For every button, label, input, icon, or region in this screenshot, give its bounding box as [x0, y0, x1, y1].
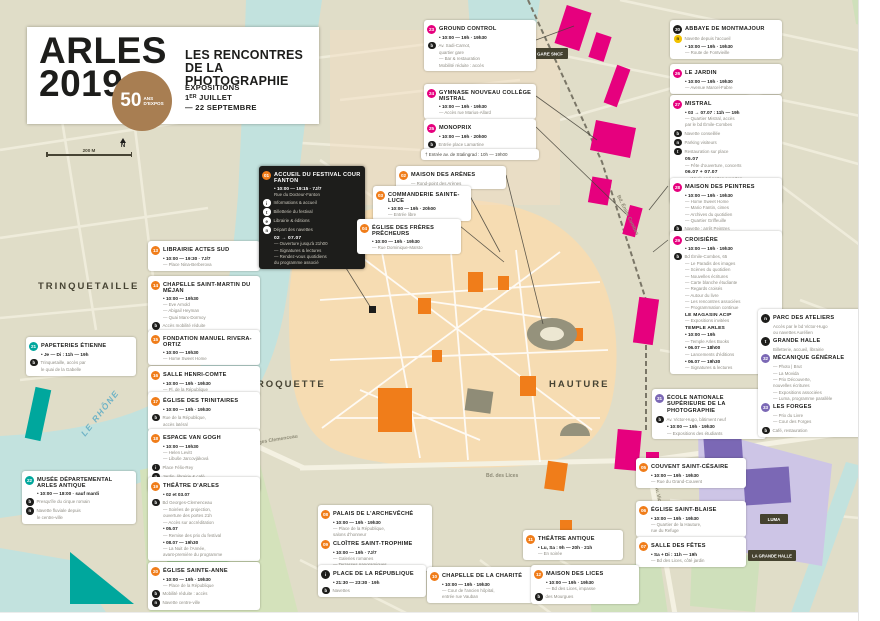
- exhibition-line: — Avenue Marcel-Fabre: [685, 85, 778, 91]
- venue-card-palais-archeveche-cloitre: 08PALAIS DE L'ARCHEVÊCHÉ• 10:00 — 19h · …: [318, 505, 432, 571]
- venue-title: MÉCANIQUE GÉNÉRALE: [773, 354, 844, 362]
- n-amenity-icon: n: [674, 35, 682, 43]
- exhibition-line: — La Movida: [773, 371, 870, 377]
- venue-number-badge: 06: [639, 506, 648, 515]
- venue-header: 24GYMNASE NOUVEAU COLLÈGE MISTRAL: [427, 88, 532, 103]
- venue-header: 07SALLE DES FÊTES: [639, 541, 742, 551]
- venue-header: 02MAISON DES ARÈNES: [399, 170, 502, 180]
- venue-title: PALAIS DE L'ARCHEVÊCHÉ: [333, 509, 413, 517]
- road-label-lices: Bd. des Lices: [486, 473, 518, 479]
- exhibition-line: — Route de Fontvieille: [685, 50, 778, 56]
- venue-title: CLOÎTRE SAINT-TROPHIME: [333, 539, 412, 547]
- venue-title: SALLE HENRI-COMTE: [163, 370, 227, 378]
- amenity-text: Librairie & éditions: [274, 218, 310, 223]
- amenity-text: Bd Georges-Clemenceau: [163, 500, 213, 505]
- venue-title: ACCUEIL DU FESTIVAL COUR FANTON: [274, 170, 361, 185]
- venue-header: nPARC DES ATELIERS: [761, 313, 870, 323]
- exhibition-line: — Quartier de la Hauture,: [651, 522, 742, 528]
- venue-title: GYMNASE NOUVEAU COLLÈGE MISTRAL: [439, 88, 532, 103]
- amenity-row: bMobilité réduite : accès: [152, 590, 256, 598]
- amenity-row: bAv. Sadi-Carnot,: [428, 42, 532, 50]
- exhibition-line: — Abigail Heyman: [163, 308, 256, 314]
- venue-header: iPLACE DE LA RÉPUBLIQUE: [321, 569, 422, 579]
- venue-title: GRANDE HALLE: [773, 337, 820, 345]
- exhibition-line: — Rendez-vous quotidiens: [274, 254, 361, 260]
- venue-header: 20ÉGLISE SAINTE-ANNE: [151, 566, 256, 576]
- exhibition-line: salons d'honneur: [333, 532, 428, 538]
- venue-header: 31ÉCOLE NATIONALE SUPÉRIEURE DE LA PHOTO…: [655, 393, 762, 414]
- hours-line: • 10:00 — 19h · 19h30: [685, 44, 778, 50]
- venue-title: FONDATION MANUEL RIVERA-ORTIZ: [163, 334, 256, 349]
- exhibition-line: — Place de la République: [163, 583, 256, 589]
- title-card: ARLES 2019 50 ANS D'EXPOS LES RENCONTRES…: [27, 27, 319, 124]
- exhibition-line: — Nouvelles écritures: [685, 274, 778, 280]
- b-amenity-icon: b: [674, 253, 682, 261]
- venue-card-fondation-manuel-rivera-ortiz: 15FONDATION MANUEL RIVERA-ORTIZ• 10:00 —…: [148, 330, 260, 365]
- exhibition-line: Mobilité réduite : accès: [439, 63, 532, 69]
- exhibition-line: — Signatures & lectures: [274, 248, 361, 254]
- venue-number-badge: 08: [321, 510, 330, 519]
- event-dates: EXPOSITIONS 1ᴱᴿ JUILLET — 22 SEPTEMBRE: [185, 83, 257, 113]
- amenity-text: Trinquetaille, accès par: [41, 360, 86, 365]
- hours-line: • 10:00 — 19h · 19h30: [442, 582, 529, 588]
- amenity-row: nParking visiteurs: [674, 139, 778, 147]
- venue-title: MONOPRIX: [439, 123, 471, 131]
- t-amenity-icon: t: [263, 208, 271, 216]
- venue-number-badge: 05: [639, 463, 648, 472]
- exhibition-line: — Cour des Forges: [773, 419, 870, 425]
- amenity-text: Presqu'île du cirque romain: [37, 499, 90, 504]
- venue-title: ÉGLISE DES FRÈRES PRÊCHEURS: [372, 223, 457, 238]
- arenes-inner: [540, 327, 564, 341]
- exhibition-line: — En soirée: [538, 551, 619, 557]
- venue-number-badge: 09: [321, 540, 330, 549]
- venue-title: LES FORGES: [773, 403, 812, 411]
- exhibition-line: — Libuše Jarcovjáková: [163, 456, 256, 462]
- exhibition-line: — Bar & restauration: [439, 56, 532, 62]
- venue-card-eglise-des-trinitaires: 17ÉGLISE DES TRINITAIRES• 10:00 — 19h · …: [148, 392, 260, 431]
- venue-card-parc-des-ateliers: nPARC DES ATELIERSAccès par le bd Victor…: [758, 309, 874, 437]
- venue-card-commanderie-sainte-luce: 03COMMANDERIE SAINTE-LUCE• 10:00 — 19h ·…: [373, 186, 471, 221]
- venue-number-badge: 29: [673, 236, 682, 245]
- exhibition-line: — Home Sweet Home: [685, 199, 778, 205]
- hours-line: • Sa + Di : 11h — 19h: [651, 552, 742, 558]
- hours-line: • 03 → 07.07 : 11h — 19h: [685, 110, 778, 116]
- amenity-text: Restauration sur place: [685, 149, 729, 154]
- venue-number-badge: 27: [673, 100, 682, 109]
- venue-number-badge: t: [761, 337, 770, 346]
- venue-number-badge: 01: [262, 171, 271, 180]
- arles-festival-map: GARE SNCF LUMA LA GRANDE HALLE Bd. Georg…: [0, 0, 880, 621]
- amenity-text: Café, restauration: [773, 428, 808, 433]
- amenity-text: Navette fluviale depuis: [37, 508, 81, 513]
- amenity-text: Rue de la République,: [163, 415, 206, 420]
- section-heading: 05.07: [685, 157, 778, 162]
- hours-line: • 10:00 — 19h · 19h30: [546, 580, 635, 586]
- exhibition-line: — Regards croisés: [685, 286, 778, 292]
- venue-title: COUVENT SAINT-CÉSAIRE: [651, 462, 728, 470]
- venue-card-musee-departemental-arles-antique: 22MUSÉE DÉPARTEMENTAL ARLES ANTIQUE• 10:…: [22, 471, 136, 524]
- venue-card-gymnase-nouveau-college-mistral: 24GYMNASE NOUVEAU COLLÈGE MISTRAL• 10:00…: [424, 84, 536, 119]
- exhibition-line: — Le Paradis des images: [685, 261, 778, 267]
- venue-title: COMMANDERIE SAINTE-LUCE: [388, 190, 467, 205]
- north-arrow: N: [120, 138, 126, 149]
- venue-header: 17ÉGLISE DES TRINITAIRES: [151, 396, 256, 406]
- exhibition-line: par le bd Émile-Combes: [685, 122, 778, 128]
- exhibition-line: — La Nuit de l'Année,: [163, 546, 256, 552]
- venue-title: GROUND CONTROL: [439, 24, 497, 32]
- hours-line: • 10:00 — 19h · 19h30: [685, 79, 778, 85]
- section-heading: 06.07 + 07.07: [685, 170, 778, 175]
- amenity-row: bPresqu'île du cirque romain: [26, 498, 132, 506]
- n-amenity-icon: n: [26, 507, 34, 515]
- hours-line: • 10:00 — 19h · 19h30: [163, 381, 256, 387]
- venue-number-badge: 31: [655, 394, 664, 403]
- venue-card-chapelle-saint-martin-du-mejan: 14CHAPELLE SAINT-MARTIN DU MÉJAN• 10:00 …: [148, 276, 260, 333]
- hours-line: • 10:00 — 19h · 19h30: [667, 424, 762, 430]
- hours-line: • 10:00 — 19h · 19h30: [685, 246, 778, 252]
- venue-number-badge: 18: [151, 434, 160, 443]
- exhibition-line: Accès par le bd Victor-Hugo: [773, 324, 870, 330]
- exhibition-line: du programme associé: [274, 260, 361, 266]
- section-heading: 02 → 07.07: [274, 236, 361, 241]
- exhibition-line: — Place de la République,: [333, 526, 428, 532]
- venue-header: 04ÉGLISE DES FRÈRES PRÊCHEURS: [360, 223, 457, 238]
- venue-card-salle-des-fetes: 07SALLE DES FÊTES• Sa + Di : 11h — 19h— …: [636, 537, 746, 567]
- venue-header: 26LE JARDIN: [673, 68, 778, 78]
- amenity-row: nDépart des navettes: [263, 226, 361, 234]
- hours-line: • 10:00 — 18:00 · sauf mardi: [37, 491, 132, 497]
- venue-title: THÉÂTRE ANTIQUE: [538, 534, 595, 542]
- venue-number-badge: 25: [427, 124, 436, 133]
- exhibition-line: — Mario Fantin, cimes: [685, 205, 778, 211]
- b-amenity-icon: b: [152, 590, 160, 598]
- venue-header: 25MONOPRIX: [427, 123, 532, 133]
- b-amenity-icon: b: [152, 499, 160, 507]
- amenity-row: bRue de la République,: [152, 414, 256, 422]
- venue-number-badge: 03: [376, 191, 385, 200]
- venue-card-chapelle-de-la-charite: 10CHAPELLE DE LA CHARITÉ• 10:00 — 19h · …: [427, 567, 533, 603]
- amenity-text: Navette conseillée: [685, 131, 721, 136]
- exhibition-line: ouverture des portes 21h: [163, 513, 256, 519]
- hours-line: • 10:00 — 19h · 20h00: [388, 206, 467, 212]
- venue-card-papeteries-etienne: 21PAPETERIES ÉTIENNE• Je — Di : 11h — 19…: [26, 337, 136, 376]
- exhibition-line: — Home Sweet Home: [163, 356, 256, 362]
- amenity-row: bdes Mourgues: [535, 593, 635, 601]
- amenity-text: Navettes: [333, 588, 350, 593]
- venue-title: THÉÂTRE D'ARLES: [163, 481, 219, 489]
- venue-header: 14CHAPELLE SAINT-MARTIN DU MÉJAN: [151, 280, 256, 295]
- venue-card-librairie-actes-sud: 13LIBRAIRIE ACTES SUD• 10:00 — 19:30 · 7…: [148, 241, 260, 271]
- amenity-row: nNavette depuis l'accueil: [674, 35, 778, 43]
- scale-bar: 200 M: [46, 148, 132, 156]
- venue-title: ESPACE VAN GOGH: [163, 433, 221, 441]
- exhibition-line: — Accès rue Marius-Allard: [439, 110, 532, 116]
- venue-header: 19THÉÂTRE D'ARLES: [151, 481, 256, 491]
- b-amenity-icon: b: [428, 141, 436, 149]
- venue-header: 29CROISIÈRE: [673, 235, 778, 245]
- venue-title: MAISON DES PEINTRES: [685, 182, 755, 190]
- exhibition-line: — Autour du livre: [685, 293, 778, 299]
- hours-line: • 10:00 — 19h30: [163, 350, 256, 356]
- amenity-row: bCafé, restauration: [762, 427, 870, 435]
- exhibition-line: le centre-ville: [37, 515, 132, 521]
- exhibition-line: — Prix du Livre: [773, 413, 870, 419]
- amenity-text: des Mourgues: [546, 594, 574, 599]
- amenity-row: bNavette conseillée: [674, 130, 778, 138]
- venue-number-badge: 21: [29, 342, 38, 351]
- venue-number-badge: 17: [151, 397, 160, 406]
- amenity-text: Navette depuis l'accueil: [685, 36, 731, 41]
- venue-number-badge: 16: [151, 371, 160, 380]
- badge-number: 50: [120, 90, 141, 112]
- venue-number-badge: 10: [430, 572, 439, 581]
- hours-line: • 10:00 — 19h · 19h30: [439, 35, 532, 41]
- venue-number-badge: 12: [534, 570, 543, 579]
- venue-card-monoprix-note: † Entrée av. de Stalingrad : 10h — 19h00: [421, 149, 539, 160]
- exhibition-line: — Galeries romanes: [333, 556, 428, 562]
- exhibition-line: — Helen Levitt: [163, 450, 256, 456]
- exhibition-line: Billetterie, accueil, librairie: [773, 347, 870, 353]
- hours-line: • 10:00 — 19h · 20h00: [439, 134, 532, 140]
- venue-card-maison-des-lices: 12MAISON DES LICES• 10:00 — 19h · 19h30—…: [531, 565, 639, 604]
- b-amenity-icon: b: [428, 42, 436, 50]
- exhibition-line: le quai de la Gabelle: [41, 367, 132, 373]
- exhibition-line: rue du Refuge: [651, 528, 742, 534]
- venue-header: 06ÉGLISE SAINT-BLAISE: [639, 505, 742, 515]
- amenity-row: bBd Georges-Clemenceau: [152, 499, 256, 507]
- venue-header: 28MAISON DES PEINTRES: [673, 182, 778, 192]
- venue-title: LIBRAIRIE ACTES SUD: [163, 245, 229, 253]
- hours-line: • 10:00 — 19h · 19h30: [685, 193, 778, 199]
- venue-header: 23GROUND CONTROL: [427, 24, 532, 34]
- venue-number-badge: 02: [399, 171, 408, 180]
- venue-header: 15FONDATION MANUEL RIVERA-ORTIZ: [151, 334, 256, 349]
- venue-header: 10CHAPELLE DE LA CHARITÉ: [430, 571, 529, 581]
- hours-line: • 21:30 — 23:30 · 19h: [333, 580, 422, 586]
- note-line: † Entrée av. de Stalingrad : 10h — 19h00: [425, 152, 535, 158]
- amenity-row: bAv. Victor-Hugo, bâtiment neuf: [656, 416, 762, 424]
- venue-number-badge: 32: [761, 354, 770, 363]
- exhibition-line: — Carte blanche étudiante: [685, 280, 778, 286]
- hotel-de-ville-shape: [465, 388, 494, 413]
- hours-line: • 02 et 03.07: [163, 492, 256, 498]
- venue-card-theatre-antique: 11THÉÂTRE ANTIQUE• Lu, Sa : 9h — 20h · 2…: [523, 530, 623, 560]
- venue-title: CHAPELLE DE LA CHARITÉ: [442, 571, 522, 579]
- b-amenity-icon: b: [656, 416, 664, 424]
- venue-header: 13LIBRAIRIE ACTES SUD: [151, 245, 256, 255]
- venue-number-badge: 14: [151, 281, 160, 290]
- amenity-row: iInformations & accueil: [263, 199, 361, 207]
- b-amenity-icon: b: [322, 587, 330, 595]
- amenity-row: iPlace Félix-Rey: [152, 464, 256, 472]
- amenity-text: Navette centre-ville: [163, 600, 201, 605]
- exhibition-line: — Les rencontres associées: [685, 299, 778, 305]
- amenity-row: tRestauration sur place: [674, 148, 778, 156]
- hours-line: • 10:00 — 19h30: [163, 444, 256, 450]
- amenity-text: Billetterie du festival: [274, 209, 313, 214]
- venue-header: 33LES FORGES: [761, 403, 870, 413]
- exhibition-line: — Quartier Mistral, accès: [685, 116, 778, 122]
- exhibition-line: — Expositions associées: [773, 390, 870, 396]
- venue-header: 03COMMANDERIE SAINTE-LUCE: [376, 190, 467, 205]
- b-amenity-icon: b: [26, 498, 34, 506]
- exhibition-line: — Eve Arnold: [163, 302, 256, 308]
- venue-header: 05COUVENT SAINT-CÉSAIRE: [639, 462, 742, 472]
- hours-line: • 10:00 — 19h30: [163, 296, 256, 302]
- exhibition-line: — Bd des Lices, côté jardin: [651, 558, 742, 564]
- amenity-row: bAccès mobilité réduite: [152, 322, 256, 330]
- hours-line: • 10:00 — 19h · 7J/7: [333, 550, 428, 556]
- i-amenity-icon: i: [263, 199, 271, 207]
- b-amenity-icon: b: [535, 593, 543, 601]
- venue-number-badge: 11: [526, 535, 535, 544]
- exhibition-line: avant-première du programme: [163, 552, 256, 558]
- venue-title: PLACE DE LA RÉPUBLIQUE: [333, 569, 414, 577]
- amenity-text: Départ des navettes: [274, 227, 313, 232]
- venue-number-badge: 30: [673, 25, 682, 34]
- amenity-row: eLibrairie & éditions: [263, 217, 361, 225]
- amenity-text: Mobilité réduite : accès: [163, 591, 208, 596]
- exhibition-line: ou navettes Aurélien: [773, 330, 870, 336]
- exhibition-line: — Accès sur accréditation: [163, 520, 256, 526]
- venue-card-theatre-d-arles: 19THÉÂTRE D'ARLES• 02 et 03.07bBd George…: [148, 477, 260, 561]
- hours-line: • 10:00 — 19h · 19h30: [333, 520, 428, 526]
- venue-number-badge: 22: [25, 476, 34, 485]
- venue-title: ÉGLISE DES TRINITAIRES: [163, 396, 238, 404]
- venue-header: 09CLOÎTRE SAINT-TROPHIME: [321, 539, 428, 549]
- amenity-text: Accès mobilité réduite: [163, 323, 206, 328]
- venue-card-abbaye-de-montmajour: 30ABBAYE DE MONTMAJOURnNavette depuis l'…: [670, 20, 782, 59]
- venue-header: 12MAISON DES LICES: [534, 569, 635, 579]
- venue-title: ÉGLISE SAINTE-ANNE: [163, 566, 228, 574]
- exhibition-line: — Expositions des étudiants: [667, 431, 762, 437]
- n-amenity-icon: n: [263, 226, 271, 234]
- venue-title: MAISON DES ARÈNES: [411, 170, 475, 178]
- exhibition-line: accès latéral: [163, 422, 256, 428]
- venue-title: CHAPELLE SAINT-MARTIN DU MÉJAN: [163, 280, 256, 295]
- venue-card-accueil-du-festival: 01ACCUEIL DU FESTIVAL COUR FANTON• 10:00…: [259, 166, 365, 269]
- amenity-row: bTrinquetaille, accès par: [30, 359, 132, 367]
- exhibition-line: — Archives du quotidien: [685, 212, 778, 218]
- venue-number-badge: 28: [673, 183, 682, 192]
- scale-line: [46, 154, 132, 156]
- hours-line: • Je — Di : 11h — 19h: [41, 352, 132, 358]
- venue-card-place-de-la-republique: iPLACE DE LA RÉPUBLIQUE• 21:30 — 23:30 ·…: [318, 565, 426, 597]
- venue-card-eglise-des-freres-precheurs: 04ÉGLISE DES FRÈRES PRÊCHEURS• 10:00 — 1…: [357, 219, 461, 254]
- venue-header: 30ABBAYE DE MONTMAJOUR: [673, 24, 778, 34]
- amenity-row: bBd Émile-Combes, 65: [674, 253, 778, 261]
- hours-line: • 10:00 — 19h · 19h30: [439, 104, 532, 110]
- venue-title: MUSÉE DÉPARTEMENTAL ARLES ANTIQUE: [37, 475, 132, 490]
- venue-header: 01ACCUEIL DU FESTIVAL COUR FANTON: [262, 170, 361, 185]
- venue-card-maison-des-peintres: 28MAISON DES PEINTRES• 10:00 — 19h · 19h…: [670, 178, 782, 236]
- venue-number-badge: 24: [427, 89, 436, 98]
- venue-header: 16SALLE HENRI-COMTE: [151, 370, 256, 380]
- exhibition-line: — Rue du Grand-Couvent: [651, 479, 742, 485]
- amenity-text: Bd Émile-Combes, 65: [685, 254, 728, 259]
- exhibition-line: — Rue Dominique-Maïsto: [372, 245, 457, 251]
- hours-line: • 10:00 — 19:15 · 7J/7: [274, 186, 361, 192]
- exhibition-line: — Ouverture jusqu'à 21h00: [274, 241, 361, 247]
- chip-gare-sncf: GARE SNCF: [537, 52, 563, 57]
- amenity-text: Av. Sadi-Carnot,: [439, 43, 471, 48]
- venue-title: CROISIÈRE: [685, 235, 718, 243]
- amenity-row: bEntrée place Lamartine: [428, 141, 532, 149]
- venue-card-couvent-saint-cesaire: 05COUVENT SAINT-CÉSAIRE• 10:00 — 19h · 1…: [636, 458, 746, 488]
- venue-number-badge: 26: [673, 69, 682, 78]
- venue-header: 08PALAIS DE L'ARCHEVÊCHÉ: [321, 509, 428, 519]
- hours-line: • 10:00 — 19h · 19h30: [651, 473, 742, 479]
- amenity-row: bNavettes: [322, 587, 422, 595]
- badge-caption: ANS D'EXPOS: [143, 96, 163, 107]
- amenity-row: nNavette fluviale depuis: [26, 507, 132, 515]
- venue-number-badge: 15: [151, 335, 160, 344]
- viewer-bottom-margin: [0, 612, 880, 621]
- amenity-text: Place Félix-Rey: [163, 465, 194, 470]
- viewer-right-margin: [858, 0, 880, 621]
- exhibition-line: — Prix Découverte,: [773, 377, 870, 383]
- venue-title: ÉCOLE NATIONALE SUPÉRIEURE DE LA PHOTOGR…: [667, 393, 762, 414]
- venue-number-badge: 33: [761, 403, 770, 412]
- amenity-text: Parking visiteurs: [685, 140, 717, 145]
- hours-line: • 05.07: [163, 526, 256, 532]
- b-amenity-icon: b: [152, 322, 160, 330]
- n-amenity-icon: n: [674, 139, 682, 147]
- venue-header: 27MISTRAL: [673, 99, 778, 109]
- hours-line: • 10:00 — 19h · 19h30: [372, 239, 457, 245]
- hours-line: • 10:00 — 19h · 19h30: [163, 407, 256, 413]
- hours-line: • 10:00 — 19h · 19h30: [651, 516, 742, 522]
- venue-card-le-jardin: 26LE JARDIN• 10:00 — 19h · 19h30— Avenue…: [670, 64, 782, 94]
- venue-number-badge: n: [761, 314, 770, 323]
- exhibition-line: — Bd des Lices, impasse: [546, 586, 635, 592]
- accueil-map-marker: [369, 306, 376, 313]
- b-amenity-icon: b: [762, 427, 770, 435]
- venue-title: LE JARDIN: [685, 68, 717, 76]
- amenity-row: tBilletterie du festival: [263, 208, 361, 216]
- venue-number-badge: 19: [151, 482, 160, 491]
- venue-title: SALLE DES FÊTES: [651, 541, 706, 549]
- chip-luma: LUMA: [768, 517, 782, 522]
- venue-header: 22MUSÉE DÉPARTEMENTAL ARLES ANTIQUE: [25, 475, 132, 490]
- anniversary-badge: 50 ANS D'EXPOS: [112, 71, 172, 131]
- venue-number-badge: 13: [151, 246, 160, 255]
- hours-line: • 08.07 — 19h30: [163, 540, 256, 546]
- venue-number-badge: 07: [639, 542, 648, 551]
- north-label: N: [120, 143, 126, 149]
- venue-header: 32MÉCANIQUE GÉNÉRALE: [761, 354, 870, 364]
- venue-title: MAISON DES LICES: [546, 569, 603, 577]
- exhibition-line: — Remise des prix du festival: [163, 533, 256, 539]
- exhibition-line: entrée rue Vauban: [442, 594, 529, 600]
- venue-card-eglise-sainte-anne: 20ÉGLISE SAINTE-ANNE• 10:00 — 19h · 19h3…: [148, 562, 260, 610]
- venue-header: tGRANDE HALLE: [761, 337, 870, 347]
- hours-line: • 10:00 — 19h · 19h30: [163, 577, 256, 583]
- venue-header: 11THÉÂTRE ANTIQUE: [526, 534, 619, 544]
- b-amenity-icon: b: [674, 130, 682, 138]
- venue-card-monoprix: 25MONOPRIX• 10:00 — 19h · 20h00bEntrée p…: [424, 119, 536, 151]
- venue-number-badge: 04: [360, 224, 369, 233]
- exhibition-line: — Quai Marx-Dormoy: [163, 315, 256, 321]
- hours-line: • Lu, Sa : 9h — 20h · 21h: [538, 545, 619, 551]
- venue-card-ecole-nationale-superieure-de-la-photographie: 31ÉCOLE NATIONALE SUPÉRIEURE DE LA PHOTO…: [652, 389, 766, 439]
- area-label-trinquetaille: TRINQUETAILLE: [38, 281, 139, 292]
- hours-line: • 10:00 — 19:30 · 7J/7: [163, 256, 256, 262]
- exhibition-line: Rue du Docteur-Fanton: [274, 192, 361, 198]
- venue-card-eglise-saint-blaise: 06ÉGLISE SAINT-BLAISE• 10:00 — 19h · 19h…: [636, 501, 746, 537]
- exhibition-line: — Scènes du quotidien: [685, 267, 778, 273]
